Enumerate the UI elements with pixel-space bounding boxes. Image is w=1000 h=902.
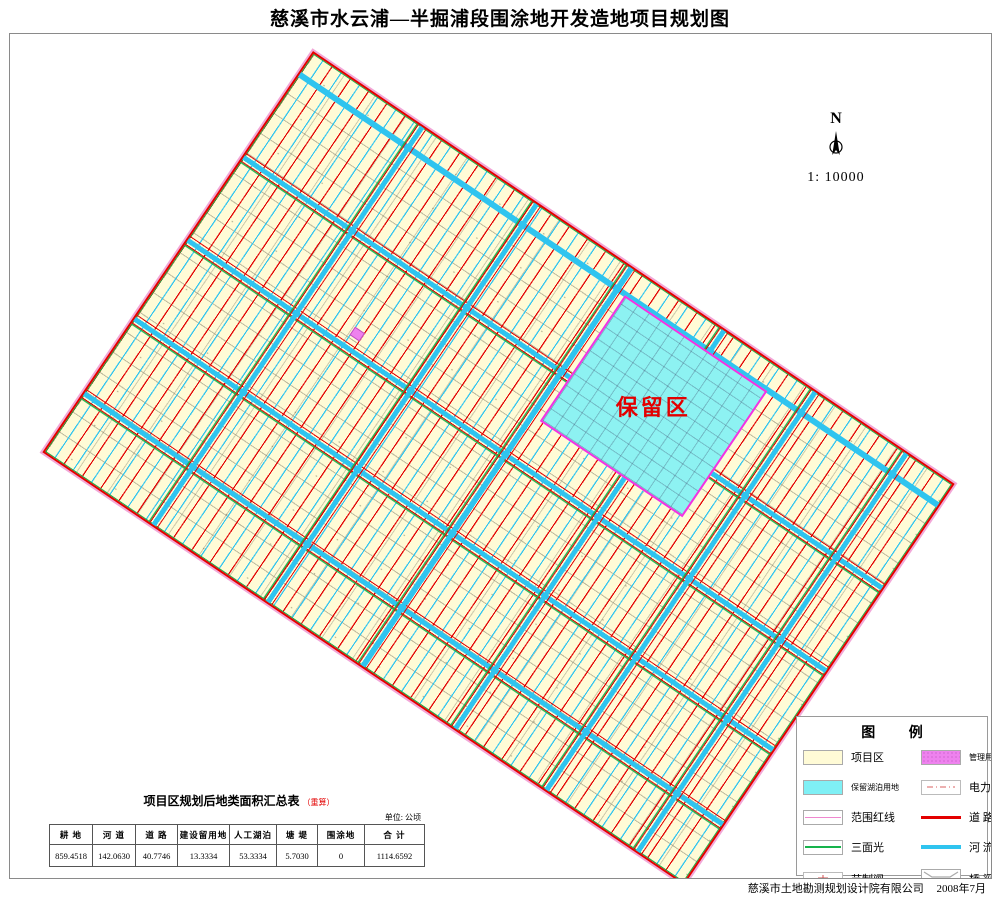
legend-box: 图 例 项目区 管理用房 保留湖泊用地 电力线路 范围红线 道 路 三面光 — [796, 716, 988, 876]
area-summary-block: 项目区规划后地类面积汇总表 （重算） 单位: 公顷 耕 地 河 道 道 路 建设… — [49, 792, 429, 867]
table-value: 142.0630 — [93, 845, 136, 867]
legend-grid: 项目区 管理用房 保留湖泊用地 电力线路 范围红线 道 路 三面光 河 流 — [803, 749, 981, 879]
legend-label: 电力线路 — [969, 779, 992, 795]
footer-credit: 慈溪市土地勘测规划设计院有限公司 2008年7月 — [738, 880, 986, 896]
map-frame: 保留区 N 1: 10000 图 例 项目区 管理用房 保留湖泊用地 — [9, 33, 992, 879]
power-line-icon — [921, 780, 961, 795]
table-value: 5.7030 — [277, 845, 318, 867]
company-name: 慈溪市土地勘测规划设计院有限公司 — [748, 883, 924, 895]
area-table-title-text: 项目区规划后地类面积汇总表 — [143, 794, 299, 808]
reserved-area-label: 保留区 — [616, 390, 691, 422]
management-house-swatch — [921, 750, 961, 765]
table-header: 围涂地 — [318, 825, 365, 845]
legend-label: 道 路 — [969, 809, 992, 825]
legend-label: 范围红线 — [851, 809, 917, 825]
area-table-note: （重算） — [303, 798, 335, 807]
legend-label: 项目区 — [851, 749, 917, 765]
map-date: 2008年7月 — [937, 883, 987, 895]
table-value: 40.7746 — [136, 845, 178, 867]
compass-block: N 1: 10000 — [791, 110, 881, 186]
river-line-swatch — [921, 845, 961, 849]
table-value: 0 — [318, 845, 365, 867]
table-value: 1114.6592 — [365, 845, 425, 867]
table-header: 合 计 — [365, 825, 425, 845]
bridge-icon — [921, 869, 961, 879]
area-summary-table: 耕 地 河 道 道 路 建设留用地 人工湖泊 塘 堤 围涂地 合 计 859.4… — [49, 824, 425, 867]
table-header: 建设留用地 — [178, 825, 230, 845]
page-title: 慈溪市水云浦—半掘浦段围涂地开发造地项目规划图 — [0, 4, 1000, 31]
road-line-swatch — [921, 816, 961, 819]
table-value: 53.3334 — [230, 845, 277, 867]
legend-label: 河 流 — [969, 839, 992, 855]
area-table-title: 项目区规划后地类面积汇总表 （重算） — [49, 792, 429, 809]
reserved-lake-land-swatch — [803, 780, 843, 795]
table-header: 塘 堤 — [277, 825, 318, 845]
legend-label: 保留湖泊用地 — [851, 782, 917, 793]
table-header: 道 路 — [136, 825, 178, 845]
boundary-red-line-swatch — [803, 810, 843, 825]
three-sided-canal-swatch — [803, 840, 843, 855]
planning-map-page: 慈溪市水云浦—半掘浦段围涂地开发造地项目规划图 保留区 N — [0, 0, 1000, 902]
control-gate-icon — [803, 872, 843, 880]
project-area-swatch — [803, 750, 843, 765]
table-header: 人工湖泊 — [230, 825, 277, 845]
table-header: 河 道 — [93, 825, 136, 845]
table-value: 13.3334 — [178, 845, 230, 867]
north-label: N — [791, 110, 881, 128]
legend-title: 图 例 — [803, 722, 981, 742]
area-table-unit: 单位: 公顷 — [49, 812, 421, 823]
table-header: 耕 地 — [50, 825, 93, 845]
management-house-marker — [349, 327, 365, 342]
map-scale: 1: 10000 — [791, 170, 881, 186]
legend-label: 三面光 — [851, 839, 917, 855]
legend-label: 桥 梁 — [969, 871, 992, 879]
compass-needle-icon — [827, 130, 845, 162]
table-value: 859.4518 — [50, 845, 93, 867]
legend-label: 管理用房 — [969, 752, 992, 763]
legend-label: 节制闸 — [851, 871, 917, 879]
